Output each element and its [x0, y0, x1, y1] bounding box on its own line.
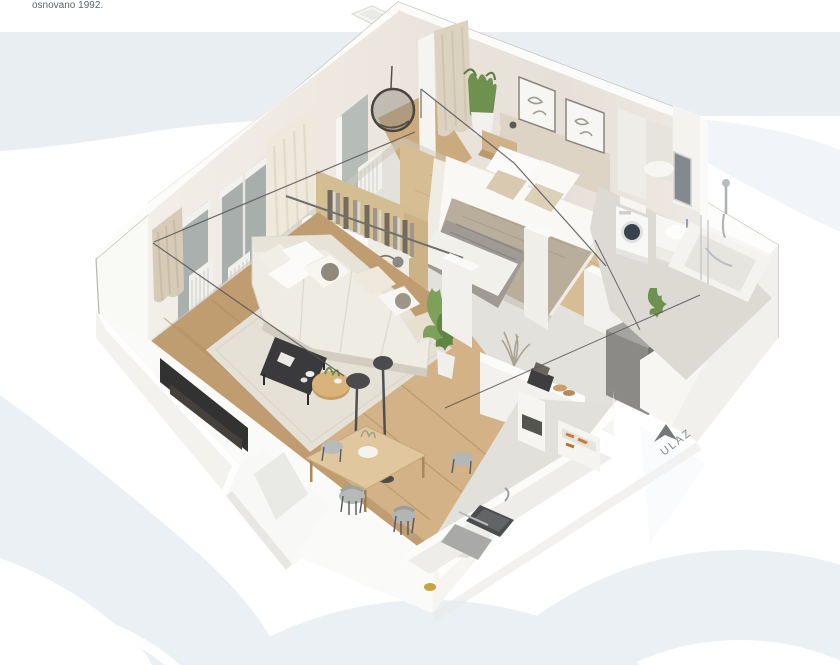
svg-text:osnovano 1992.: osnovano 1992. — [32, 0, 103, 11]
